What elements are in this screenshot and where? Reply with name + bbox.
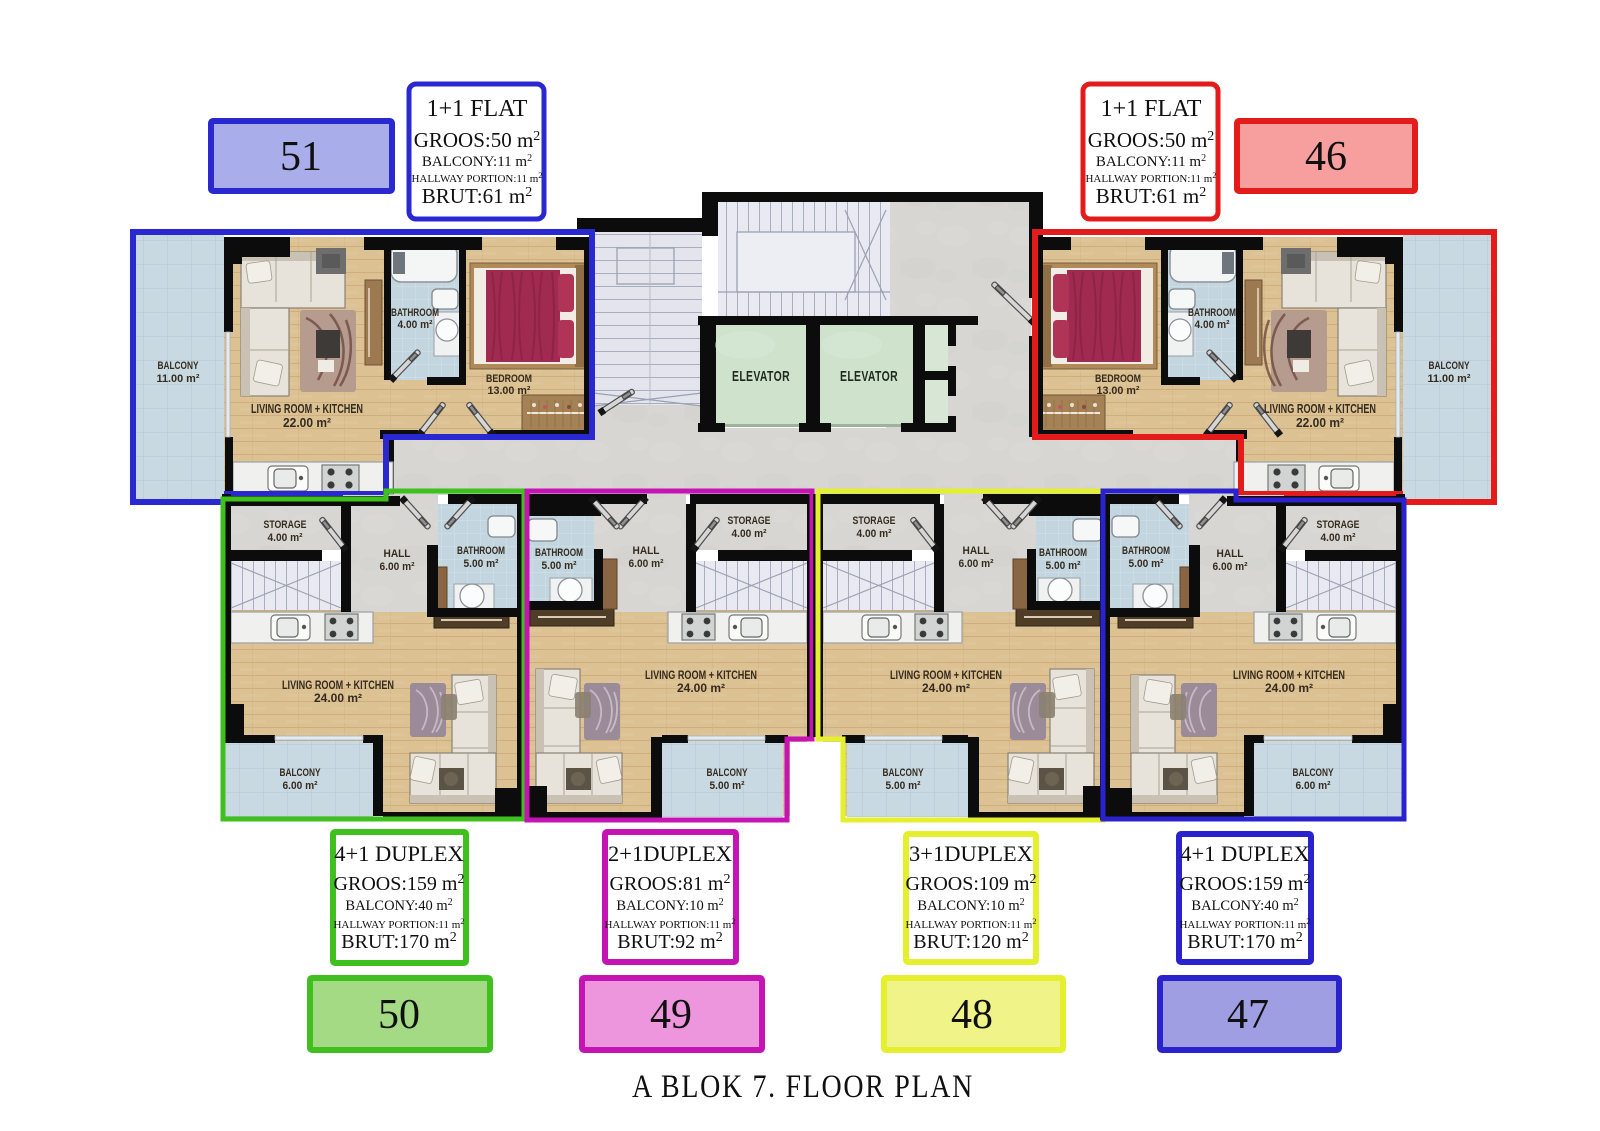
svg-text:5.00 m²: 5.00 m² (710, 780, 745, 792)
svg-text:6.00 m²: 6.00 m² (380, 561, 415, 573)
svg-text:BEDROOM: BEDROOM (486, 373, 532, 385)
svg-text:BALCONY:10 m2: BALCONY:10 m2 (917, 897, 1024, 914)
svg-text:6.00 m²: 6.00 m² (1213, 561, 1248, 573)
svg-text:51: 51 (280, 134, 322, 180)
svg-text:3+1DUPLEX: 3+1DUPLEX (909, 841, 1033, 866)
svg-text:BALCONY:40 m2: BALCONY:40 m2 (345, 897, 452, 914)
svg-text:24.00 m²: 24.00 m² (314, 691, 362, 705)
svg-text:6.00 m²: 6.00 m² (959, 558, 994, 570)
svg-text:BALCONY:40 m2: BALCONY:40 m2 (1191, 897, 1298, 914)
svg-text:ELEVATOR: ELEVATOR (732, 368, 790, 385)
svg-text:24.00 m²: 24.00 m² (922, 681, 970, 695)
svg-text:5.00 m²: 5.00 m² (886, 780, 921, 792)
svg-text:4.00 m²: 4.00 m² (398, 319, 433, 331)
svg-text:GROOS:81 m2: GROOS:81 m2 (610, 872, 731, 895)
svg-text:HALLWAY PORTION:11 m2: HALLWAY PORTION:11 m2 (411, 170, 542, 185)
svg-text:STORAGE: STORAGE (728, 515, 771, 527)
svg-text:STORAGE: STORAGE (1317, 519, 1360, 531)
svg-text:5.00 m²: 5.00 m² (464, 558, 499, 570)
svg-text:BALCONY:11 m2: BALCONY:11 m2 (422, 153, 532, 170)
svg-text:22.00 m²: 22.00 m² (283, 416, 331, 430)
svg-text:50: 50 (378, 992, 420, 1038)
svg-text:GROOS:109 m2: GROOS:109 m2 (906, 872, 1037, 895)
svg-text:HALLWAY PORTION:11 m2: HALLWAY PORTION:11 m2 (1179, 916, 1310, 931)
svg-text:4.00 m²: 4.00 m² (268, 532, 303, 544)
svg-text:BATHROOM: BATHROOM (1122, 545, 1170, 557)
svg-text:4.00 m²: 4.00 m² (1321, 532, 1356, 544)
svg-text:4+1 DUPLEX: 4+1 DUPLEX (1180, 841, 1310, 866)
svg-text:BRUT:61 m2: BRUT:61 m2 (422, 184, 532, 208)
svg-text:HALL: HALL (384, 548, 411, 560)
svg-text:4.00 m²: 4.00 m² (1195, 319, 1230, 331)
svg-text:STORAGE: STORAGE (264, 519, 307, 531)
svg-text:BRUT:170 m2: BRUT:170 m2 (1187, 930, 1302, 953)
svg-text:11.00 m²: 11.00 m² (157, 373, 200, 385)
svg-text:BRUT:92 m2: BRUT:92 m2 (617, 930, 722, 953)
svg-text:GROOS:50 m2: GROOS:50 m2 (414, 128, 541, 152)
svg-text:ELEVATOR: ELEVATOR (840, 368, 898, 385)
svg-text:6.00 m²: 6.00 m² (629, 558, 664, 570)
svg-text:24.00 m²: 24.00 m² (1265, 681, 1313, 695)
svg-text:13.00 m²: 13.00 m² (488, 385, 531, 397)
svg-text:LIVING ROOM + KITCHEN: LIVING ROOM + KITCHEN (1264, 402, 1376, 416)
svg-text:46: 46 (1305, 134, 1347, 180)
svg-text:BRUT:170 m2: BRUT:170 m2 (341, 930, 456, 953)
svg-text:22.00 m²: 22.00 m² (1296, 416, 1344, 430)
svg-text:HALL: HALL (1217, 548, 1244, 560)
svg-text:BALCONY: BALCONY (280, 767, 321, 779)
svg-text:GROOS:50 m2: GROOS:50 m2 (1088, 128, 1215, 152)
svg-text:49: 49 (650, 992, 692, 1038)
svg-text:GROOS:159 m2: GROOS:159 m2 (1180, 872, 1311, 895)
svg-text:LIVING ROOM + KITCHEN: LIVING ROOM + KITCHEN (251, 402, 363, 416)
svg-text:HALLWAY PORTION:11 m2: HALLWAY PORTION:11 m2 (333, 916, 464, 931)
svg-text:HALLWAY PORTION:11 m2: HALLWAY PORTION:11 m2 (905, 916, 1036, 931)
svg-text:BEDROOM: BEDROOM (1095, 373, 1141, 385)
svg-text:5.00 m²: 5.00 m² (1129, 558, 1164, 570)
svg-text:HALLWAY PORTION:11 m2: HALLWAY PORTION:11 m2 (604, 916, 735, 931)
svg-text:HALLWAY PORTION:11 m2: HALLWAY PORTION:11 m2 (1085, 170, 1216, 185)
svg-text:4.00 m²: 4.00 m² (857, 528, 892, 540)
svg-text:BALCONY: BALCONY (883, 767, 924, 779)
svg-text:1+1 FLAT: 1+1 FLAT (427, 96, 528, 122)
svg-text:LIVING ROOM + KITCHEN: LIVING ROOM + KITCHEN (1233, 668, 1345, 682)
svg-text:BATHROOM: BATHROOM (391, 307, 439, 319)
svg-text:5.00 m²: 5.00 m² (1046, 560, 1081, 572)
svg-text:2+1DUPLEX: 2+1DUPLEX (608, 841, 732, 866)
svg-text:47: 47 (1227, 992, 1269, 1038)
svg-text:LIVING ROOM + KITCHEN: LIVING ROOM + KITCHEN (890, 668, 1002, 682)
svg-text:6.00 m²: 6.00 m² (283, 780, 318, 792)
svg-text:BATHROOM: BATHROOM (1188, 307, 1236, 319)
svg-text:13.00 m²: 13.00 m² (1097, 385, 1140, 397)
svg-text:11.00 m²: 11.00 m² (1428, 373, 1471, 385)
svg-text:6.00 m²: 6.00 m² (1296, 780, 1331, 792)
svg-text:HALL: HALL (633, 545, 660, 557)
svg-text:BALCONY: BALCONY (1429, 360, 1470, 372)
svg-text:BATHROOM: BATHROOM (535, 547, 583, 559)
svg-text:BALCONY: BALCONY (158, 360, 199, 372)
svg-text:GROOS:159 m2: GROOS:159 m2 (334, 872, 465, 895)
svg-text:HALL: HALL (963, 545, 990, 557)
svg-text:A BLOK 7. FLOOR PLAN: A BLOK 7. FLOOR PLAN (632, 1069, 974, 1105)
svg-text:BALCONY: BALCONY (707, 767, 748, 779)
svg-text:BALCONY:11 m2: BALCONY:11 m2 (1096, 153, 1206, 170)
svg-text:5.00 m²: 5.00 m² (542, 560, 577, 572)
svg-text:BRUT:120 m2: BRUT:120 m2 (913, 930, 1028, 953)
svg-text:BATHROOM: BATHROOM (1039, 547, 1087, 559)
svg-text:BALCONY: BALCONY (1293, 767, 1334, 779)
svg-text:4+1 DUPLEX: 4+1 DUPLEX (334, 841, 464, 866)
svg-text:BALCONY:10 m2: BALCONY:10 m2 (616, 897, 723, 914)
svg-text:24.00 m²: 24.00 m² (677, 681, 725, 695)
svg-text:STORAGE: STORAGE (853, 515, 896, 527)
svg-text:48: 48 (951, 992, 993, 1038)
svg-text:LIVING ROOM + KITCHEN: LIVING ROOM + KITCHEN (282, 678, 394, 692)
svg-text:BATHROOM: BATHROOM (457, 545, 505, 557)
svg-text:1+1 FLAT: 1+1 FLAT (1101, 96, 1202, 122)
svg-text:LIVING ROOM + KITCHEN: LIVING ROOM + KITCHEN (645, 668, 757, 682)
svg-text:4.00 m²: 4.00 m² (732, 528, 767, 540)
svg-text:BRUT:61 m2: BRUT:61 m2 (1096, 184, 1206, 208)
